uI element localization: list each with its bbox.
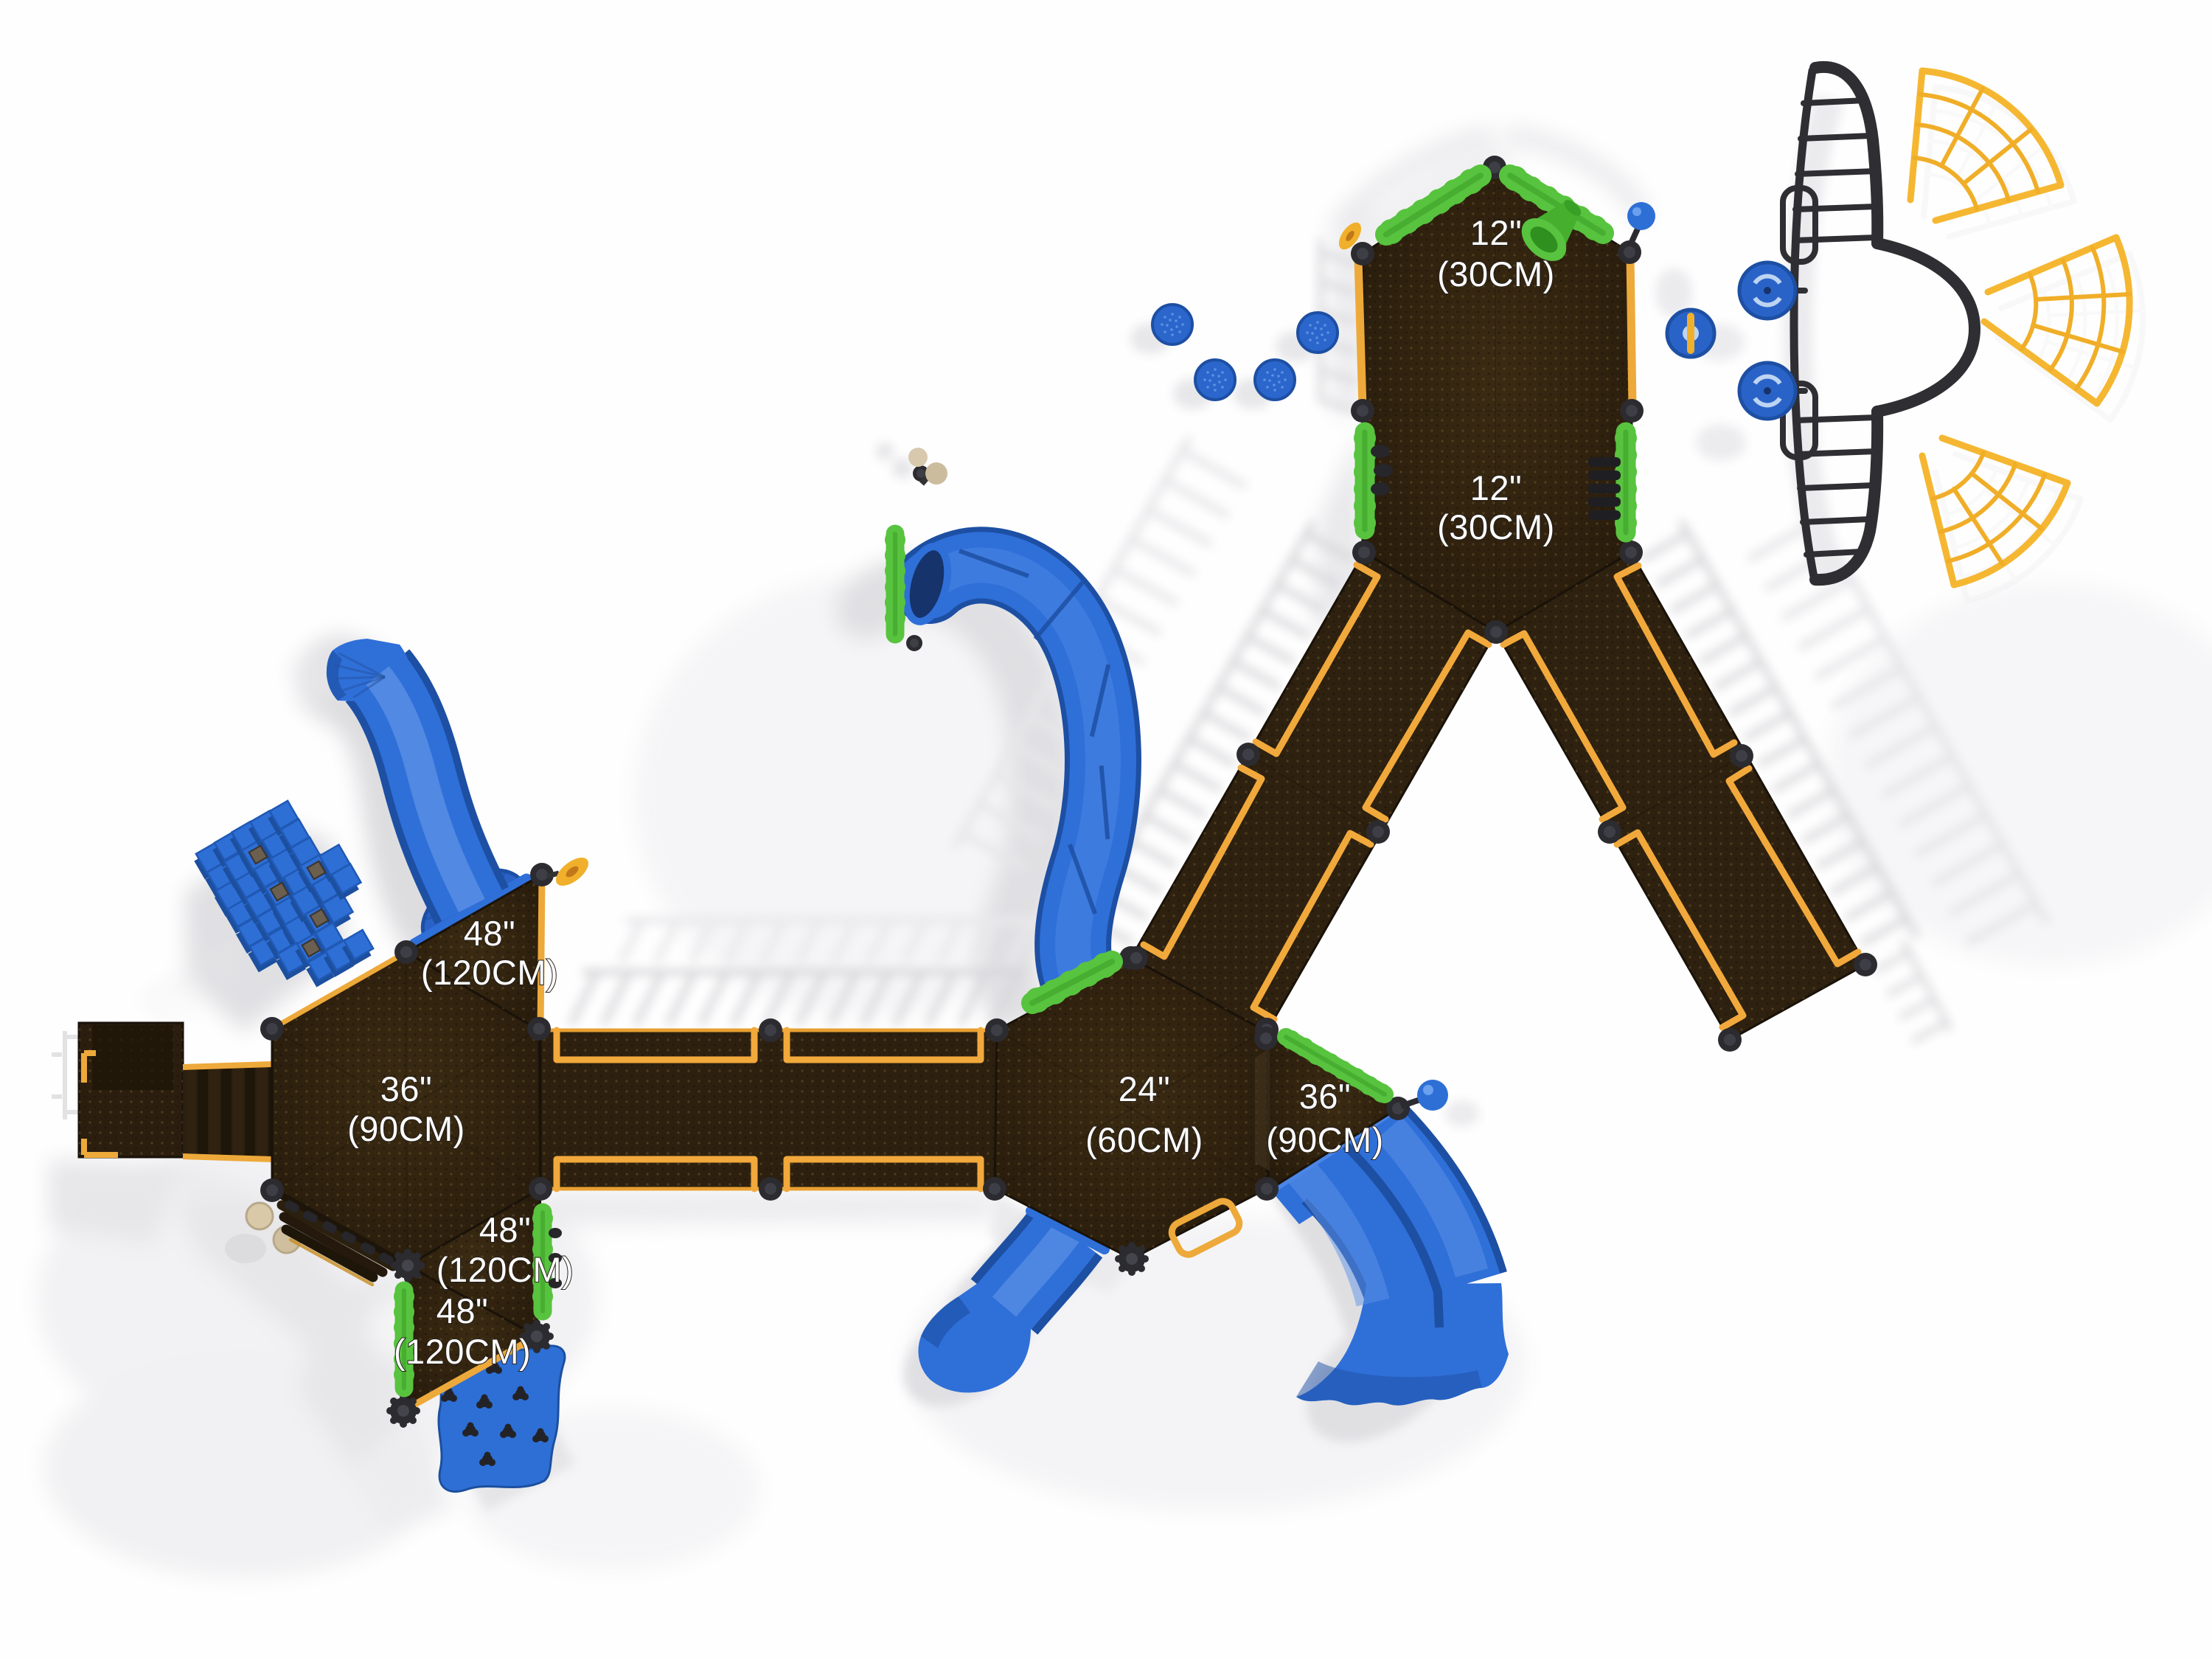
svg-text:(90CM): (90CM) <box>1266 1120 1384 1159</box>
svg-text:(120CM): (120CM) <box>394 1332 531 1371</box>
svg-text:36": 36" <box>380 1069 432 1108</box>
svg-text:(30CM): (30CM) <box>1437 254 1555 294</box>
svg-text:(120CM): (120CM) <box>437 1250 574 1289</box>
svg-text:12": 12" <box>1470 213 1522 252</box>
svg-text:(30CM): (30CM) <box>1437 507 1555 546</box>
svg-text:36": 36" <box>1299 1077 1351 1116</box>
svg-text:(60CM): (60CM) <box>1085 1120 1203 1159</box>
svg-text:48": 48" <box>464 914 515 953</box>
svg-text:(120CM): (120CM) <box>421 953 558 992</box>
svg-text:24": 24" <box>1119 1069 1170 1108</box>
svg-text:12": 12" <box>1470 468 1522 507</box>
svg-text:(90CM): (90CM) <box>347 1109 465 1148</box>
svg-text:48": 48" <box>437 1291 488 1330</box>
svg-text:48": 48" <box>479 1210 531 1249</box>
